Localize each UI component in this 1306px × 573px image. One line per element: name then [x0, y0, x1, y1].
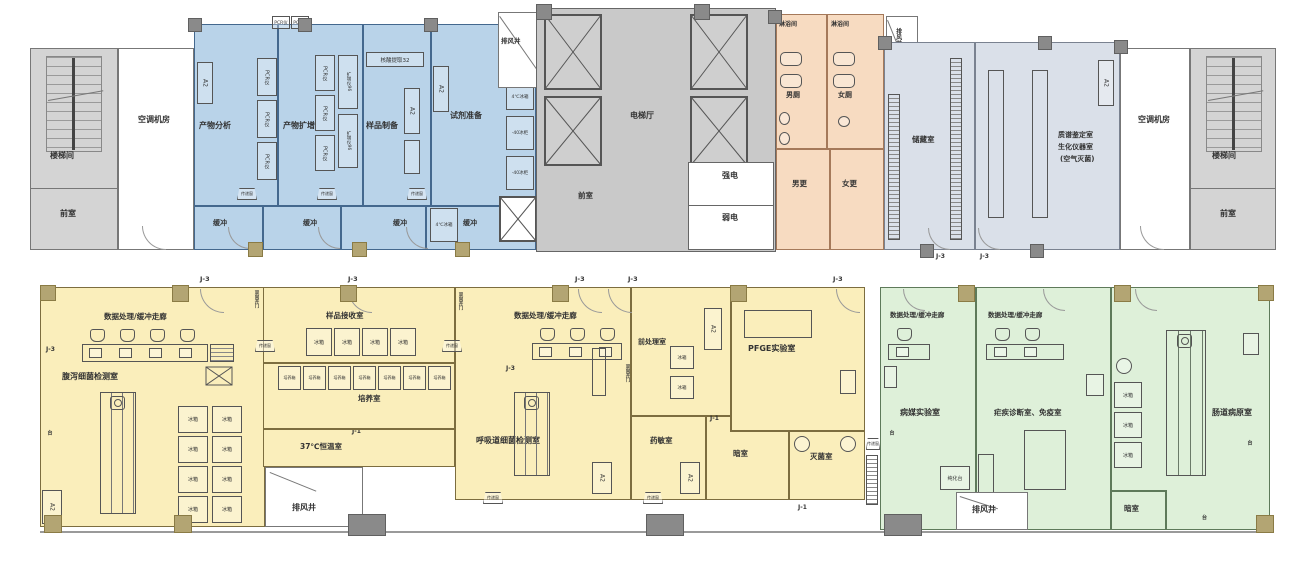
label-door-j1: J-1	[710, 416, 719, 423]
label-data-corridor: 数据处理/缓冲走廊	[890, 312, 944, 319]
chair-icon	[90, 329, 105, 342]
wall-cabinet	[1086, 374, 1104, 396]
label-product-analysis: 产物分析	[199, 122, 231, 131]
label-door-j3: J-3	[833, 276, 843, 283]
monitor-icon	[179, 348, 192, 358]
column	[340, 285, 357, 302]
fridge: 冰箱	[362, 328, 388, 356]
column	[174, 515, 192, 533]
label-sample-receiving: 样品接收室	[326, 312, 364, 320]
column	[40, 285, 56, 301]
lab-bench	[1024, 430, 1066, 490]
pass-window: 传递窗	[255, 340, 275, 352]
fridge: 冰箱	[306, 328, 332, 356]
biosafety-cabinet-a2: A2	[704, 308, 722, 350]
label-strong-power: 强电	[722, 172, 738, 181]
column	[958, 285, 975, 302]
shelf-rack	[888, 94, 900, 240]
monitor-icon	[119, 348, 132, 358]
lab-bench	[1166, 330, 1206, 476]
microscope-icon	[524, 396, 539, 410]
air-shower-icon	[205, 366, 233, 386]
label-data-corridor: 数据处理/缓冲走廊	[988, 312, 1042, 319]
column	[878, 36, 892, 50]
pass-window: 传递窗	[643, 492, 663, 504]
shelf-rack	[210, 344, 234, 362]
label-door-j3: J-3	[506, 366, 515, 373]
wall	[730, 430, 865, 432]
label-door-j1: J-1	[798, 505, 807, 512]
label-bench-tag: 台	[1246, 440, 1252, 445]
label-buffer-1: 缓冲	[213, 220, 227, 228]
pcr-machine: PCR仪	[257, 58, 277, 96]
label-door-j3: J-3	[200, 276, 210, 283]
autoclave-icon	[840, 436, 856, 452]
wall	[340, 205, 342, 250]
label-anteroom: 前室	[1220, 210, 1236, 219]
microscope-icon	[1177, 334, 1192, 348]
label-dark-room: 暗室	[733, 450, 748, 458]
column	[348, 514, 386, 536]
label-female-toilet: 女厕	[838, 92, 852, 100]
label-exhaust-4: 排风井	[972, 506, 996, 515]
label-stairwell: 楼梯间	[1212, 152, 1236, 161]
fridge: 冰箱	[670, 346, 694, 369]
lab-bench	[1032, 70, 1048, 218]
monitor-icon	[1024, 347, 1037, 357]
wall-cabinet	[1243, 333, 1259, 355]
label-pfge-lab: PFGE实验室	[748, 345, 795, 354]
room-ac-right	[1120, 48, 1190, 250]
wall	[630, 287, 632, 500]
label-weak-power: 弱电	[722, 214, 738, 223]
monitor-icon	[539, 347, 552, 357]
label-incubation-37: 37℃恒温室	[300, 443, 342, 451]
chair-icon	[180, 329, 195, 342]
label-bench-tag: 台	[888, 430, 894, 435]
label-product-amplification: 产物扩增	[283, 122, 315, 131]
label-diarrhea-lab: 腹泻细菌检测室	[62, 373, 118, 382]
biosafety-cabinet-a2: A2	[197, 62, 213, 104]
incubator: 培养箱	[378, 366, 401, 390]
label-vector-lab: 病媒实验室	[900, 409, 940, 418]
biosafety-cabinet-a2: A2	[592, 462, 612, 494]
wall	[263, 428, 455, 430]
incubator: 培养箱	[353, 366, 376, 390]
chair-icon	[600, 328, 615, 341]
column	[884, 514, 922, 536]
fridge: 冰箱	[212, 466, 242, 493]
wall	[1110, 287, 1112, 530]
wall-cabinet	[884, 366, 897, 388]
fridge: 冰箱	[178, 466, 208, 493]
label-data-corridor: 数据处理/缓冲走廊	[104, 313, 167, 321]
label-door-j3: J-3	[348, 276, 358, 283]
monitor-icon	[569, 347, 582, 357]
toilet-icon	[779, 132, 790, 145]
pass-window: 传递窗	[317, 188, 337, 200]
column	[768, 10, 782, 24]
label-sterilization: 灭菌室	[810, 453, 833, 461]
label-ms-room-1: 质谱鉴定室	[1058, 132, 1093, 140]
chair-icon	[120, 329, 135, 342]
column	[552, 285, 569, 302]
fridge: 冰箱	[334, 328, 360, 356]
incubator: 培养箱	[278, 366, 301, 390]
label-exhaust-1: 排风井	[501, 38, 521, 45]
label-ms-room-3: (空气灭菌)	[1060, 156, 1094, 164]
wall	[430, 24, 432, 205]
pcr-machine: PCR仪	[315, 55, 335, 91]
column	[1258, 285, 1274, 301]
column	[172, 285, 189, 302]
pass-window: 传递窗	[483, 492, 503, 504]
microscope-icon	[110, 396, 125, 410]
lab-bench	[744, 310, 812, 338]
column	[424, 18, 438, 32]
label-male-toilet: 男厕	[786, 92, 800, 100]
fridge: 冰箱	[390, 328, 416, 356]
label-door-j3: J-3	[980, 254, 989, 261]
biosafety-cabinet-a2: A2	[680, 462, 700, 494]
wall	[688, 205, 774, 206]
label-ac-left: 空调机房	[138, 116, 170, 125]
freezer-40: -40冰柜	[506, 116, 534, 150]
duct-shaft	[866, 455, 878, 505]
wall-cabinet	[840, 370, 856, 394]
label-malaria-immune: 疟疾诊断室、免疫室	[994, 409, 1062, 417]
floor-plan: 楼梯间 前室 空调机房 产物分析 产物扩增 样品制备 试剂准备 缓冲 缓冲 缓冲…	[0, 0, 1306, 573]
column	[536, 4, 552, 20]
room-anteroom-right	[1190, 188, 1276, 250]
zone-pcr-blue	[194, 24, 536, 250]
shower-stall	[780, 74, 802, 88]
fridge: 冰箱	[212, 436, 242, 463]
stair-rail	[1232, 58, 1235, 150]
column	[1114, 40, 1128, 54]
pcr-machine: PCR仪	[257, 142, 277, 180]
sink-icon	[838, 116, 850, 127]
label-door-j3: J-3	[936, 254, 945, 261]
chair-icon	[1025, 328, 1040, 341]
chair-icon	[995, 328, 1010, 341]
nucleic-extractor: 核酸提取32	[366, 52, 424, 67]
fridge: 冰箱	[1114, 412, 1142, 438]
label-dark-room-2: 暗室	[1124, 505, 1139, 513]
amplifier-96: 扩增仪96	[338, 114, 358, 168]
chair-icon	[150, 329, 165, 342]
fridge: 冰箱	[212, 406, 242, 433]
incubator: 培养箱	[303, 366, 326, 390]
fridge: 冰箱	[1114, 382, 1142, 408]
label-male-changing: 男更	[792, 180, 807, 188]
pass-window: 传递窗	[866, 438, 880, 450]
label-bench-tag: 台	[46, 430, 52, 435]
label-double-swing-door: 双向开门	[624, 364, 629, 382]
label-elevator-hall: 电梯厅	[630, 112, 654, 121]
column	[920, 244, 934, 258]
wall	[263, 362, 455, 364]
label-shower-2: 淋浴间	[831, 22, 849, 29]
column	[1038, 36, 1052, 50]
wall	[705, 415, 707, 500]
column	[455, 242, 470, 257]
biosafety-cabinet-a2: A2	[404, 88, 420, 134]
fridge: 冰箱	[670, 376, 694, 399]
wall	[788, 430, 790, 500]
monitor-icon	[896, 347, 909, 357]
pass-window: 传递窗	[237, 188, 257, 200]
fridge-4c: 4℃冰箱	[430, 208, 458, 242]
label-door-j3: J-3	[628, 276, 638, 283]
shower-stall	[780, 52, 802, 66]
lab-bench	[100, 392, 136, 514]
wall	[362, 24, 364, 205]
label-double-swing-door: 双向开门	[253, 290, 258, 308]
pass-window: 传递窗	[442, 340, 462, 352]
pcr-machine: PCR仪	[315, 95, 335, 131]
label-sample-prep: 样品制备	[366, 122, 398, 131]
incubator: 培养箱	[328, 366, 351, 390]
elevator-icon	[690, 96, 748, 166]
pcr-machine: PCR仪	[272, 16, 290, 29]
fridge: 冰箱	[212, 496, 242, 523]
wall	[829, 148, 831, 250]
monitor-icon	[89, 348, 102, 358]
tall-cabinet	[592, 348, 606, 396]
column	[1114, 285, 1131, 302]
monitor-icon	[994, 347, 1007, 357]
room-anteroom-left	[30, 188, 118, 250]
wall	[194, 205, 536, 207]
centrifuge-icon	[1116, 358, 1132, 374]
label-data-corridor: 数据处理/缓冲走廊	[514, 312, 577, 320]
wall	[730, 287, 732, 430]
column	[730, 285, 747, 302]
column	[298, 18, 312, 32]
small-lift-icon	[499, 196, 537, 242]
column	[646, 514, 684, 536]
label-anteroom-core: 前室	[578, 192, 593, 200]
monitor-icon	[149, 348, 162, 358]
lab-bench	[988, 70, 1004, 218]
column	[1256, 515, 1274, 533]
autoclave-icon	[794, 436, 810, 452]
incubator: 培养箱	[403, 366, 426, 390]
label-ms-room-2: 生化仪器室	[1058, 144, 1093, 152]
label-pretreatment: 前处理室	[638, 339, 666, 347]
purify-bench: 纯化台	[940, 466, 970, 490]
label-culture-room: 培养室	[358, 395, 381, 403]
label-ac-right: 空调机房	[1138, 116, 1170, 125]
wall	[1110, 490, 1165, 492]
label-stairwell: 楼梯间	[50, 152, 74, 161]
fridge: 冰箱	[1114, 442, 1142, 468]
pcr-machine: PCR仪	[257, 100, 277, 138]
label-buffer-2: 缓冲	[303, 220, 317, 228]
pass-window: 传递窗	[407, 188, 427, 200]
column	[188, 18, 202, 32]
column	[44, 515, 62, 533]
desk	[888, 344, 930, 360]
wall	[277, 24, 279, 205]
label-exhaust-3: 排风井	[292, 504, 316, 513]
wall	[1165, 490, 1167, 530]
fridge: 冰箱	[178, 436, 208, 463]
chair-icon	[540, 328, 555, 341]
instrument-box	[404, 140, 420, 174]
label-anteroom: 前室	[60, 210, 76, 219]
elevator-icon	[544, 14, 602, 90]
label-buffer-4: 缓冲	[463, 220, 477, 228]
label-door-j3: J-3	[575, 276, 585, 283]
shower-stall	[833, 52, 855, 66]
elevator-icon	[690, 14, 748, 90]
freezer-40: -40冰柜	[506, 156, 534, 190]
room-ac-left	[118, 48, 194, 250]
biosafety-cabinet-a2: A2	[433, 66, 449, 112]
label-door-j1: J-1	[352, 429, 361, 436]
label-female-changing: 女更	[842, 180, 857, 188]
chair-icon	[897, 328, 912, 341]
label-buffer-3: 缓冲	[393, 220, 407, 228]
chair-icon	[570, 328, 585, 341]
label-drug-sensitivity: 药敏室	[650, 437, 673, 445]
elevator-icon	[544, 96, 602, 166]
column	[352, 242, 367, 257]
toilet-icon	[779, 112, 790, 125]
label-reagent-prep: 试剂准备	[450, 112, 482, 121]
wall	[974, 42, 976, 250]
label-enteric-pathogen: 肠道病原室	[1212, 409, 1252, 418]
stair-rail	[72, 58, 75, 150]
amplifier-96: 扩增仪96	[338, 55, 358, 109]
fridge: 冰箱	[178, 406, 208, 433]
pcr-machine: PCR仪	[315, 135, 335, 171]
column	[694, 4, 710, 20]
wall	[826, 14, 828, 148]
column	[1030, 244, 1044, 258]
incubator: 培养箱	[428, 366, 451, 390]
shelf-rack	[950, 58, 962, 240]
label-door-j3: J-3	[46, 347, 55, 354]
biosafety-cabinet-a2: A2	[1098, 60, 1114, 106]
label-bench-tag: 台	[1202, 516, 1207, 522]
label-double-swing-door: 双向开门	[457, 292, 462, 310]
label-storage: 储藏室	[912, 136, 935, 144]
column	[248, 242, 263, 257]
shower-stall	[833, 74, 855, 88]
